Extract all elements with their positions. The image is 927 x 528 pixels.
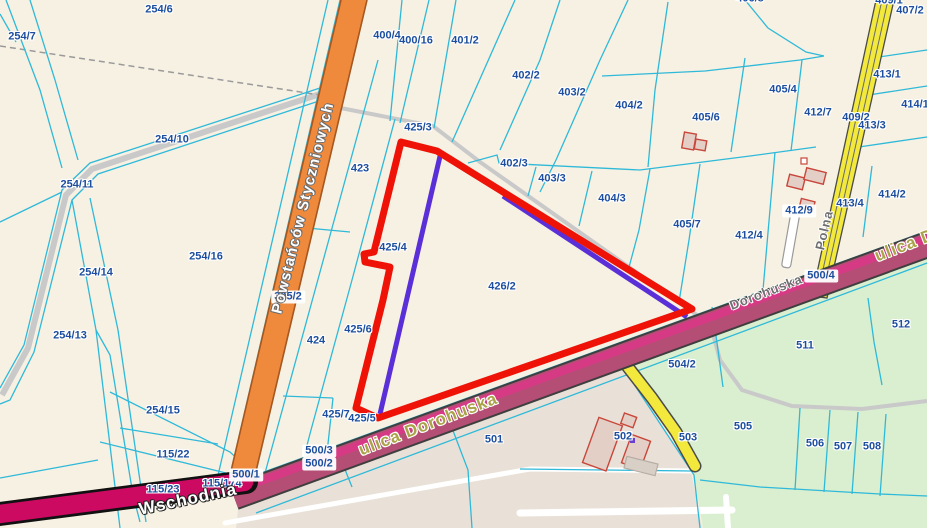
parcel-label: 504/2 [668, 360, 696, 371]
parcel-label: 506 [806, 439, 824, 450]
parcel-label: 412/7 [804, 108, 832, 119]
parcel-label: 501 [485, 435, 503, 446]
parcel-label: 511 [796, 341, 814, 352]
map-canvas[interactable]: 254/6254/7254/10254/11254/14254/16254/13… [0, 0, 927, 528]
parcel-label: 401/2 [451, 36, 479, 47]
parcel-label: 413/4 [836, 199, 864, 210]
parcel-label: 413/3 [858, 121, 886, 132]
parcel-label: 425/3 [404, 123, 432, 134]
parcel-label: 400/4 [373, 31, 401, 42]
parcel-label: 405/4 [769, 85, 797, 96]
parcel-label: 512 [892, 320, 910, 331]
parcel-label: 426/2 [488, 282, 516, 293]
parcel-label: 403/3 [538, 174, 566, 185]
parcel-label: 400/16 [399, 36, 433, 47]
parcel-label: 412/9 [782, 205, 816, 218]
parcel-label: 404/3 [598, 194, 626, 205]
dashed-boundary-line [0, 46, 320, 95]
parcel-label: 405/7 [673, 220, 701, 231]
parcel-label: 508 [863, 442, 881, 453]
parcel-label: 413/1 [873, 70, 901, 81]
parcel-label: 500/2 [302, 458, 336, 471]
parcel-label: 254/15 [146, 406, 180, 417]
parcel-label: 402/3 [500, 159, 528, 170]
parcel-label: 406/8 [736, 0, 764, 5]
parcel-label: 404/2 [615, 101, 643, 112]
parcel-label: 425/6 [344, 325, 372, 336]
parcel-label: 405/6 [692, 113, 720, 124]
parcel-label: 423 [351, 164, 369, 175]
parcel-label: 254/6 [145, 5, 173, 16]
parcel-label: 254/7 [8, 32, 36, 43]
parcel-label: 254/14 [79, 268, 113, 279]
parcel-label: 424 [307, 336, 325, 347]
parcel-label: 507 [834, 442, 852, 453]
parcel-label: 254/11 [60, 180, 93, 191]
parcel-label: 500/3 [302, 445, 336, 458]
parcel-label: 414/2 [878, 190, 906, 201]
parcel-label: 254/10 [155, 135, 189, 146]
parcel-label: 412/4 [735, 231, 763, 242]
parcel-label: 115/22 [156, 450, 189, 461]
parcel-label: 500/4 [804, 270, 838, 283]
map-graphics [0, 0, 927, 528]
parcel-label: 403/2 [558, 88, 586, 99]
parcel-label: 407/2 [896, 6, 924, 17]
parcel-label: 409/1 [875, 0, 903, 7]
parcel-label: 414/1 [901, 100, 927, 111]
parcel-label: 503 [679, 433, 697, 444]
parcel-label: 425/7 [322, 410, 350, 421]
parcel-label: 254/13 [53, 331, 87, 342]
parcel-label: 505 [734, 422, 752, 433]
parcel-label: 254/16 [189, 252, 223, 263]
parcel-label: 502 [614, 432, 632, 443]
parcel-label: 425/5 [348, 414, 376, 425]
parcel-label: 402/2 [512, 71, 540, 82]
parcel-label: 425/4 [379, 243, 407, 254]
